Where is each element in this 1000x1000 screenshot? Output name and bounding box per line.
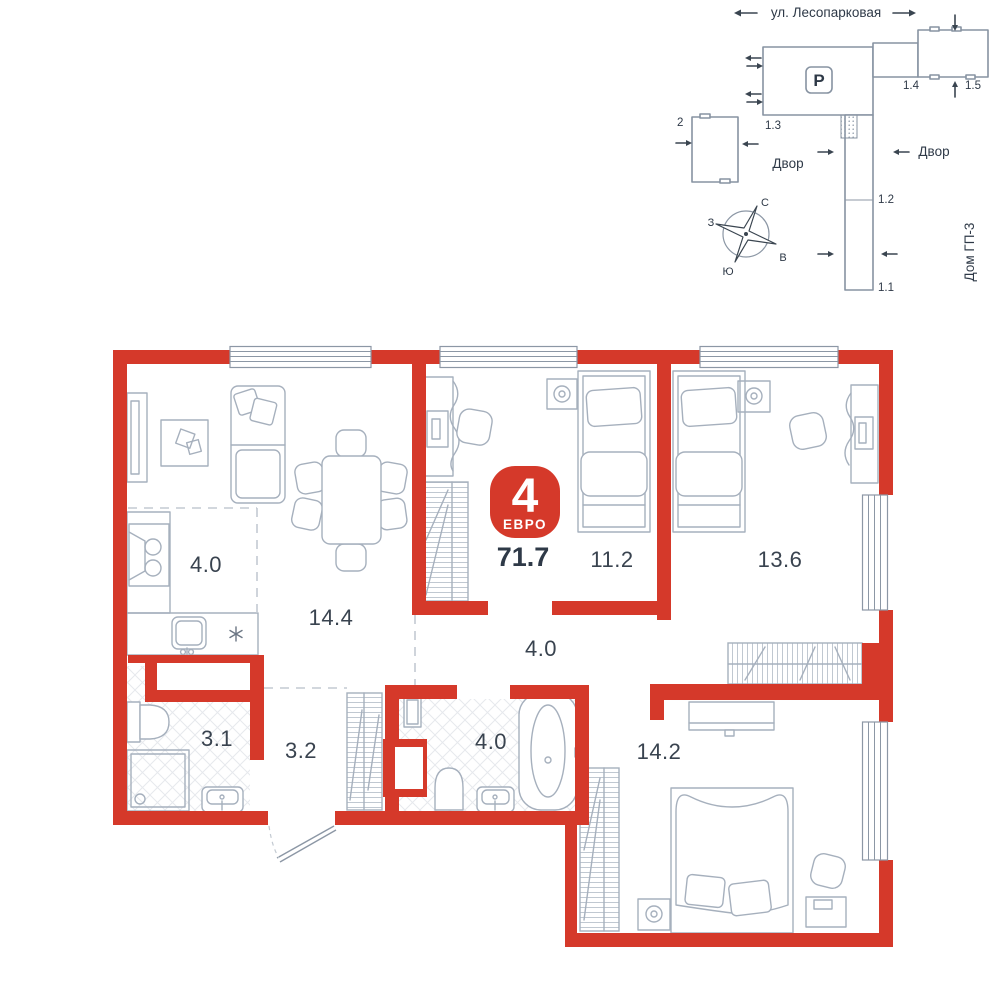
badge-rooms-number: 4	[512, 470, 539, 523]
arrow-right-icon	[747, 63, 763, 69]
street-arrow-right-icon	[893, 10, 916, 17]
compass-west: З	[708, 217, 715, 229]
sink-icon	[202, 787, 243, 812]
street-arrow-left-icon	[734, 10, 757, 17]
bathroom-2-area-label: 4.0	[475, 729, 507, 754]
tower-hatched-section	[841, 115, 857, 138]
section-1-1-label: 1.1	[878, 282, 894, 294]
arrow-left-icon	[745, 91, 761, 97]
bedroom-3-area-label: 14.2	[637, 739, 682, 764]
arrow-right-icon	[818, 149, 834, 155]
plan-canvas: ул. Лесопарковая P 1.3 1.4 1.5 1.2 1.1 2…	[0, 0, 1000, 1000]
tv-stand-icon	[689, 702, 774, 736]
desk-chair-icon	[788, 411, 828, 451]
dresser-icon	[806, 897, 846, 927]
building-2-label: 2	[677, 117, 683, 129]
desk-chair-icon	[455, 407, 493, 446]
bathtub-icon	[519, 693, 577, 810]
coffee-table-icon	[161, 420, 208, 466]
floorplan-page: ул. Лесопарковая P 1.3 1.4 1.5 1.2 1.1 2…	[0, 0, 1000, 1000]
ceiling-light-icon	[638, 899, 670, 930]
compass-north: С	[761, 197, 769, 209]
water-heater-icon	[404, 697, 421, 727]
room-bedroom-2	[673, 371, 878, 684]
window-icon	[440, 347, 577, 368]
compass-south: Ю	[722, 266, 733, 278]
corridor-area-label: 4.0	[525, 636, 557, 661]
house-gp3-label: Дом ГП-3	[962, 223, 977, 282]
stove-icon	[129, 524, 169, 586]
bedroom-1-area-label: 11.2	[590, 547, 633, 572]
arrow-left-icon	[745, 55, 761, 61]
wardrobe-icon	[728, 643, 862, 684]
toilet-icon	[435, 768, 463, 810]
room-entry-hall	[347, 693, 382, 810]
floor-plan: 4 ЕВРО 71.7 4.0 14.4 11.2 13.6 4.0 3.1 3…	[113, 347, 893, 948]
double-bed-icon	[671, 788, 793, 933]
section-1-3-label: 1.3	[765, 120, 781, 132]
desk-icon	[422, 377, 459, 476]
building-2	[692, 117, 738, 182]
compass-east: В	[779, 252, 786, 264]
parking-letter: P	[813, 71, 824, 90]
boiler-icon	[230, 627, 242, 641]
section-1-5-label: 1.5	[965, 80, 981, 92]
room-kitchen	[127, 512, 258, 655]
entrance-door-icon	[269, 826, 336, 862]
arrow-right-icon	[818, 251, 834, 257]
bedroom-2-area-label: 13.6	[758, 547, 803, 572]
chair-icon	[809, 852, 848, 891]
yard-right-label: Двор	[918, 144, 949, 159]
building-1-4	[873, 43, 918, 77]
site-plan: ул. Лесопарковая P 1.3 1.4 1.5 1.2 1.1 2…	[676, 5, 988, 294]
shaft-opening	[395, 747, 423, 789]
dining-set-icon	[290, 430, 408, 571]
badge-type-label: ЕВРО	[503, 517, 547, 532]
room-labels: 4.0 14.4 11.2 13.6 4.0 3.1 3.2 4.0 14.2	[190, 547, 802, 764]
arrow-right-icon	[676, 140, 692, 146]
arrow-left-icon	[893, 149, 909, 155]
window-icon	[230, 347, 371, 368]
sink-icon	[477, 787, 514, 812]
tv-icon	[131, 401, 139, 474]
desk-icon	[845, 385, 878, 483]
section-1-2-label: 1.2	[878, 194, 894, 206]
arrow-up-icon	[952, 81, 958, 97]
tower-building	[845, 115, 873, 290]
street-label: ул. Лесопарковая	[771, 5, 881, 20]
single-bed-icon	[673, 371, 745, 532]
arrow-left-icon	[881, 251, 897, 257]
kitchen-sink-icon	[172, 617, 206, 654]
arrow-left-icon	[742, 141, 758, 147]
room-bedroom-3	[580, 702, 847, 933]
single-bed-icon	[578, 371, 650, 532]
hall-area-label: 3.2	[285, 738, 317, 763]
building-bump	[700, 114, 710, 118]
arrow-right-icon	[747, 99, 763, 105]
building-bump	[930, 27, 939, 31]
building-1-5	[918, 30, 988, 77]
bathroom-1-area-label: 3.1	[201, 726, 233, 751]
wardrobe-icon	[347, 693, 382, 810]
kitchen-area-label: 4.0	[190, 552, 222, 577]
window-icon	[700, 347, 838, 368]
yard-left-label: Двор	[772, 156, 803, 171]
wardrobe-icon	[422, 482, 468, 601]
window-icon	[863, 722, 888, 860]
sofa-icon	[231, 386, 285, 503]
building-bump	[720, 179, 730, 183]
total-area-label: 71.7	[497, 542, 550, 572]
living-area-label: 14.4	[309, 605, 354, 630]
table-decor-icon	[187, 440, 202, 455]
shaft-opening	[157, 663, 250, 690]
toilet-icon	[127, 702, 169, 742]
ceiling-light-icon	[547, 379, 577, 409]
table-decor-icon	[176, 429, 195, 448]
section-1-4-label: 1.4	[903, 80, 920, 92]
building-bump	[930, 75, 939, 79]
compass-icon: С В Ю З	[708, 197, 787, 278]
building-bump	[966, 75, 975, 79]
window-icon	[863, 495, 888, 610]
apartment-badge: 4 ЕВРО 71.7	[490, 466, 560, 572]
